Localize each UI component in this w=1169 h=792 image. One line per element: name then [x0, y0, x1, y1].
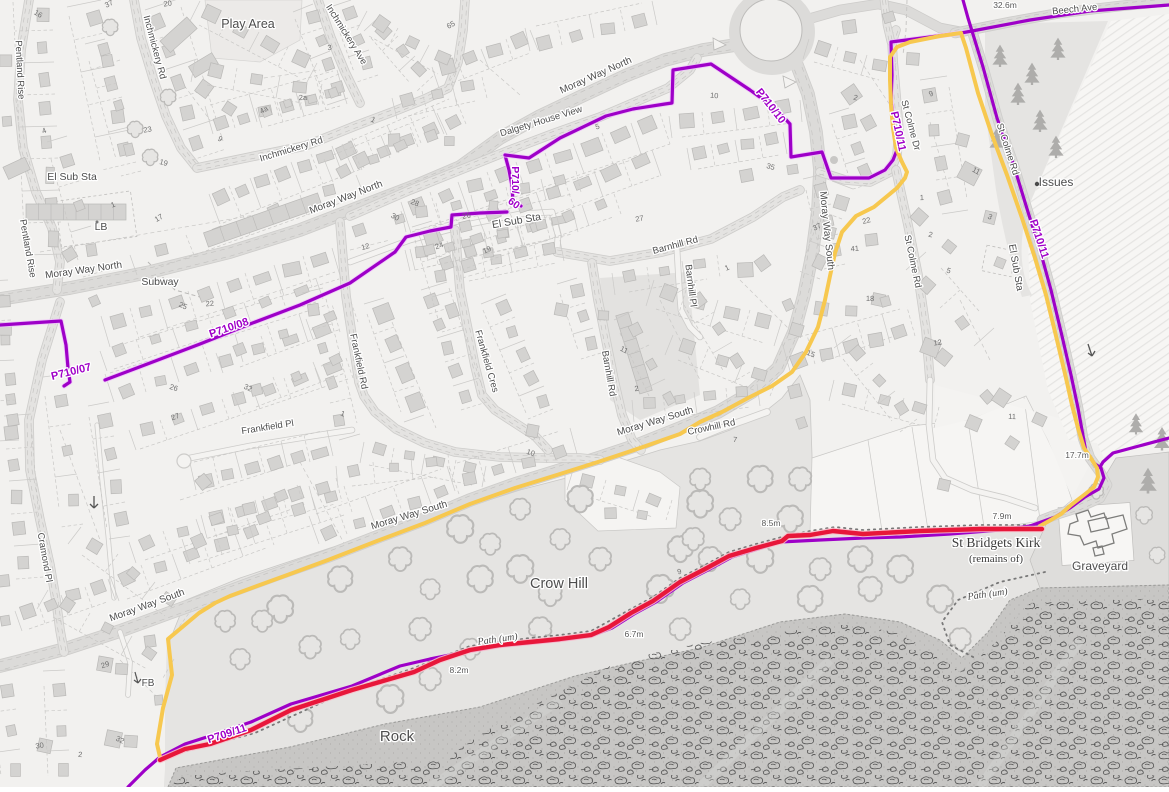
svg-text:17.7m: 17.7m [1065, 450, 1089, 460]
svg-text:Rock: Rock [380, 728, 415, 745]
svg-text:P710/: P710/ [509, 166, 521, 194]
svg-text:11: 11 [1008, 412, 1016, 421]
svg-text:23: 23 [143, 124, 153, 134]
svg-text:7: 7 [733, 435, 738, 444]
svg-text:St Bridgets Kirk: St Bridgets Kirk [952, 535, 1041, 550]
svg-text:8.2m: 8.2m [450, 665, 469, 675]
svg-text:(remains of): (remains of) [969, 553, 1023, 565]
svg-text:1: 1 [920, 193, 924, 202]
svg-text:27: 27 [635, 213, 645, 223]
svg-text:20: 20 [163, 0, 173, 9]
svg-text:Play Area: Play Area [221, 17, 275, 31]
svg-text:8.5m: 8.5m [762, 518, 781, 528]
svg-text:Crow Hill: Crow Hill [530, 576, 588, 592]
svg-text:Graveyard: Graveyard [1072, 559, 1128, 573]
svg-text:30: 30 [35, 740, 45, 750]
svg-text:2a: 2a [299, 93, 308, 102]
svg-text:41: 41 [850, 244, 859, 254]
svg-text:10: 10 [710, 91, 719, 101]
svg-text:FB: FB [142, 678, 155, 689]
svg-text:El Sub Sta: El Sub Sta [47, 171, 97, 183]
svg-text:32.6m: 32.6m [993, 0, 1017, 10]
svg-text:6.7m: 6.7m [625, 629, 644, 639]
svg-text:22: 22 [205, 299, 214, 309]
svg-text:12: 12 [933, 337, 943, 347]
svg-text:18: 18 [866, 294, 874, 303]
svg-text:Issues: Issues [1039, 175, 1074, 189]
svg-text:7.9m: 7.9m [993, 511, 1012, 521]
svg-text:Subway: Subway [141, 276, 179, 288]
